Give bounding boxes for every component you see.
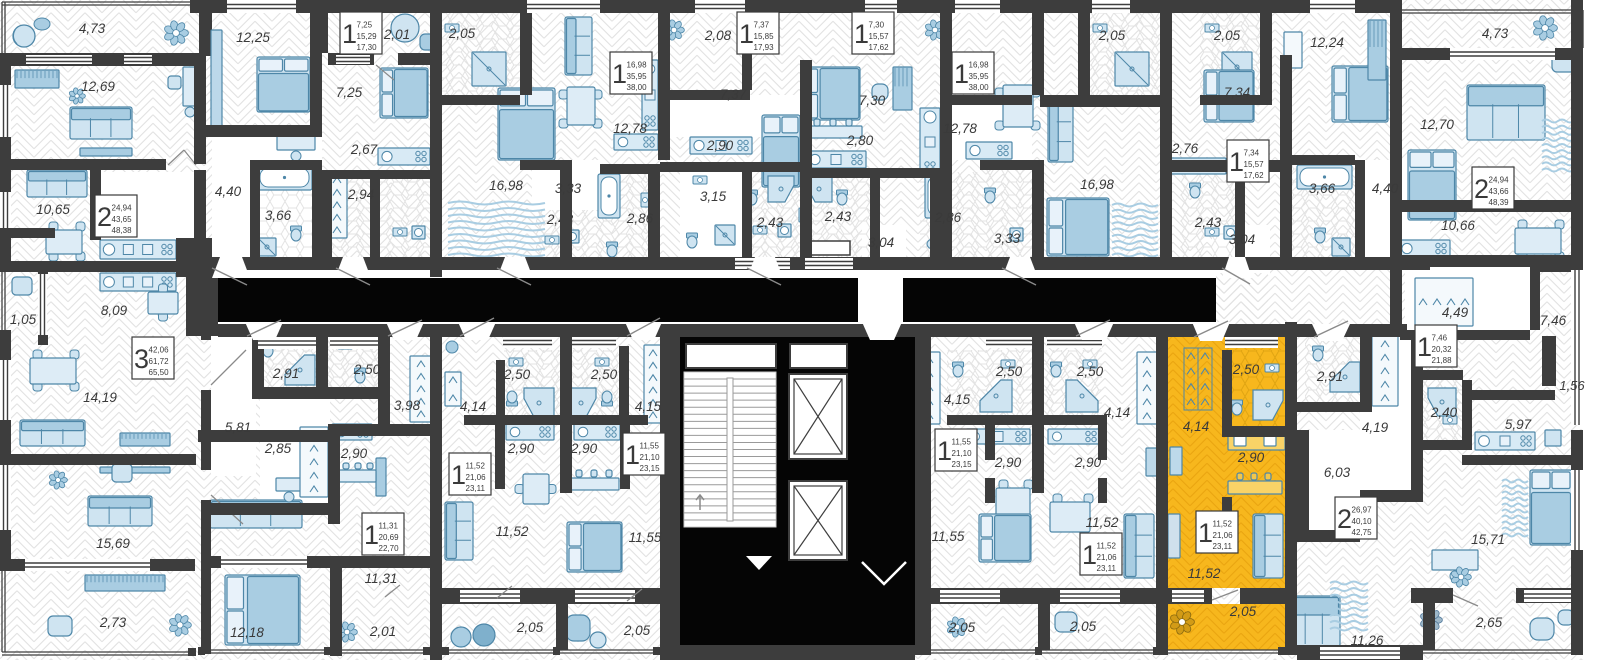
svg-text:11,31: 11,31 [379,522,399,531]
svg-text:17,93: 17,93 [754,43,775,52]
svg-text:3,33: 3,33 [555,181,582,196]
svg-text:3,33: 3,33 [994,231,1021,246]
svg-text:21,06: 21,06 [466,473,487,482]
svg-text:11,55: 11,55 [932,529,965,544]
svg-text:1: 1 [1417,332,1432,362]
svg-text:1: 1 [954,59,969,89]
svg-text:3,15: 3,15 [700,189,727,204]
svg-text:4,73: 4,73 [79,21,106,36]
svg-text:15,85: 15,85 [754,32,775,41]
svg-text:42,75: 42,75 [1352,528,1373,537]
svg-text:17,62: 17,62 [1244,171,1265,180]
svg-text:17,62: 17,62 [869,43,890,52]
svg-text:7,30: 7,30 [869,21,885,30]
svg-text:1: 1 [1198,518,1213,548]
svg-text:22,70: 22,70 [379,544,400,553]
svg-text:2,50: 2,50 [1232,362,1260,377]
svg-text:20,69: 20,69 [379,533,400,542]
svg-text:15,71: 15,71 [1471,532,1505,547]
svg-text:21,06: 21,06 [1097,553,1118,562]
svg-text:40,10: 40,10 [1352,517,1373,526]
svg-text:4,14: 4,14 [460,399,486,414]
svg-text:14,19: 14,19 [83,390,117,405]
svg-text:1: 1 [1229,147,1244,177]
svg-text:4,15: 4,15 [944,392,971,407]
svg-text:4,14: 4,14 [1183,419,1209,434]
svg-text:2,50: 2,50 [590,367,618,382]
svg-text:1: 1 [1082,540,1097,570]
svg-text:12,24: 12,24 [1310,35,1344,50]
svg-text:2,43: 2,43 [1194,215,1222,230]
svg-text:10,66: 10,66 [1441,218,1475,233]
svg-text:2,86: 2,86 [626,211,654,226]
svg-text:20,32: 20,32 [1432,345,1453,354]
svg-text:2,01: 2,01 [369,624,396,639]
svg-text:2,01: 2,01 [383,27,410,42]
svg-text:7,34: 7,34 [1224,85,1250,100]
svg-text:48,39: 48,39 [1489,198,1510,207]
svg-text:2,50: 2,50 [995,364,1023,379]
svg-text:11,55: 11,55 [640,442,660,451]
svg-text:1: 1 [364,520,379,550]
svg-text:2,67: 2,67 [350,142,378,157]
svg-text:11,52: 11,52 [466,462,486,471]
svg-text:7,37: 7,37 [754,21,770,30]
svg-text:4,15: 4,15 [635,399,662,414]
svg-text:38,00: 38,00 [627,83,648,92]
svg-text:2,05: 2,05 [1069,619,1097,634]
svg-text:2,05: 2,05 [1098,28,1126,43]
svg-text:1: 1 [854,19,869,49]
svg-text:42,06: 42,06 [149,346,170,355]
svg-text:2,90: 2,90 [1074,455,1102,470]
svg-text:16,98: 16,98 [1080,177,1114,192]
svg-text:2,05: 2,05 [948,620,976,635]
svg-text:16,98: 16,98 [627,61,648,70]
svg-text:61,72: 61,72 [149,357,170,366]
svg-text:11,52: 11,52 [1086,515,1119,530]
svg-text:4,19: 4,19 [1362,420,1389,435]
svg-text:2,40: 2,40 [1430,405,1458,420]
svg-text:16,98: 16,98 [489,178,523,193]
svg-text:4,40: 4,40 [215,184,242,199]
svg-text:2,76: 2,76 [1171,141,1199,156]
svg-text:4,14: 4,14 [1104,405,1130,420]
svg-text:12,78: 12,78 [943,121,977,136]
svg-text:26,97: 26,97 [1352,506,1373,515]
svg-text:11,55: 11,55 [952,438,972,447]
svg-text:23,11: 23,11 [466,484,486,493]
svg-text:2,50: 2,50 [503,367,531,382]
svg-text:15,57: 15,57 [869,32,890,41]
svg-text:2,05: 2,05 [623,623,651,638]
svg-text:7,25: 7,25 [357,21,373,30]
svg-text:11,55: 11,55 [629,530,662,545]
svg-text:43,65: 43,65 [112,215,133,224]
svg-text:2,90: 2,90 [507,441,535,456]
svg-text:2,43: 2,43 [756,215,784,230]
svg-text:12,70: 12,70 [1420,117,1454,132]
svg-text:65,50: 65,50 [149,368,170,377]
svg-text:11,52: 11,52 [1213,520,1233,529]
svg-text:43,66: 43,66 [1489,187,1510,196]
svg-text:15,57: 15,57 [1244,160,1265,169]
svg-text:1: 1 [739,19,754,49]
svg-text:2,65: 2,65 [1475,615,1503,630]
svg-text:2,90: 2,90 [994,455,1022,470]
svg-text:7,30: 7,30 [859,93,886,108]
svg-text:23,11: 23,11 [1097,564,1117,573]
svg-text:11,52: 11,52 [1097,542,1117,551]
svg-text:5,97: 5,97 [1505,417,1532,432]
svg-text:2,90: 2,90 [570,441,598,456]
svg-text:1,56: 1,56 [1559,378,1585,393]
svg-text:24,94: 24,94 [1489,176,1510,185]
svg-text:4,40: 4,40 [1372,181,1399,196]
svg-text:23,15: 23,15 [952,460,973,469]
svg-text:38,00: 38,00 [969,83,990,92]
svg-text:21,10: 21,10 [952,449,973,458]
svg-text:2,80: 2,80 [846,133,874,148]
svg-text:2: 2 [1337,504,1352,534]
svg-text:2,05: 2,05 [448,26,476,41]
svg-text:2,73: 2,73 [99,615,127,630]
svg-text:2,90: 2,90 [1237,450,1265,465]
svg-text:7,34: 7,34 [1244,149,1260,158]
svg-text:2: 2 [97,202,112,232]
svg-text:1: 1 [937,436,952,466]
svg-text:7,46: 7,46 [1432,334,1448,343]
svg-text:4,49: 4,49 [1442,305,1469,320]
svg-text:1: 1 [342,19,357,49]
svg-text:11,31: 11,31 [365,571,398,586]
svg-text:2,05: 2,05 [516,620,544,635]
svg-text:1: 1 [451,460,466,490]
svg-text:2,91: 2,91 [272,366,299,381]
svg-text:16,98: 16,98 [969,61,990,70]
svg-text:3: 3 [134,344,149,374]
svg-text:10,65: 10,65 [36,202,70,217]
svg-text:2,50: 2,50 [1076,364,1104,379]
svg-text:11,52: 11,52 [1188,566,1221,581]
svg-text:7,46: 7,46 [1540,313,1567,328]
svg-text:2,91: 2,91 [1316,369,1343,384]
svg-text:12,78: 12,78 [613,121,647,136]
svg-text:5,81: 5,81 [225,420,251,435]
svg-text:2,94: 2,94 [347,187,374,202]
svg-text:3,66: 3,66 [1309,181,1336,196]
svg-text:8,09: 8,09 [101,303,128,318]
svg-text:2,08: 2,08 [704,28,732,43]
svg-text:2,85: 2,85 [264,441,292,456]
svg-text:7,37: 7,37 [720,87,747,102]
svg-text:3,04: 3,04 [868,235,894,250]
svg-text:11,26: 11,26 [1351,633,1384,648]
svg-text:3,04: 3,04 [1229,232,1255,247]
svg-text:15,29: 15,29 [357,32,378,41]
svg-text:1: 1 [612,59,627,89]
svg-text:2,05: 2,05 [1213,28,1241,43]
svg-text:2,86: 2,86 [934,210,962,225]
svg-text:1: 1 [625,440,640,470]
svg-text:1,05: 1,05 [10,312,37,327]
svg-text:21,88: 21,88 [1432,356,1453,365]
svg-text:2,05: 2,05 [1229,604,1257,619]
svg-text:21,10: 21,10 [640,453,661,462]
svg-text:7,25: 7,25 [336,85,363,100]
svg-text:21,06: 21,06 [1213,531,1234,540]
svg-text:12,25: 12,25 [236,30,270,45]
svg-text:11,52: 11,52 [496,524,529,539]
svg-text:2,50: 2,50 [353,362,381,377]
svg-text:17,30: 17,30 [357,43,378,52]
svg-text:23,15: 23,15 [640,464,661,473]
svg-text:6,03: 6,03 [1324,465,1351,480]
svg-text:12,18: 12,18 [230,625,264,640]
svg-text:3,98: 3,98 [394,398,421,413]
svg-text:24,94: 24,94 [112,204,133,213]
svg-text:12,69: 12,69 [81,79,115,94]
svg-text:35,95: 35,95 [969,72,990,81]
svg-text:2,90: 2,90 [340,446,368,461]
svg-text:23,11: 23,11 [1213,542,1233,551]
svg-text:2,43: 2,43 [824,209,852,224]
svg-text:15,69: 15,69 [96,536,130,551]
svg-text:2: 2 [1474,174,1489,204]
svg-text:48,38: 48,38 [112,226,133,235]
svg-text:4,73: 4,73 [1482,26,1509,41]
svg-text:35,95: 35,95 [627,72,648,81]
svg-text:2,90: 2,90 [706,138,734,153]
svg-text:3,66: 3,66 [265,208,292,223]
